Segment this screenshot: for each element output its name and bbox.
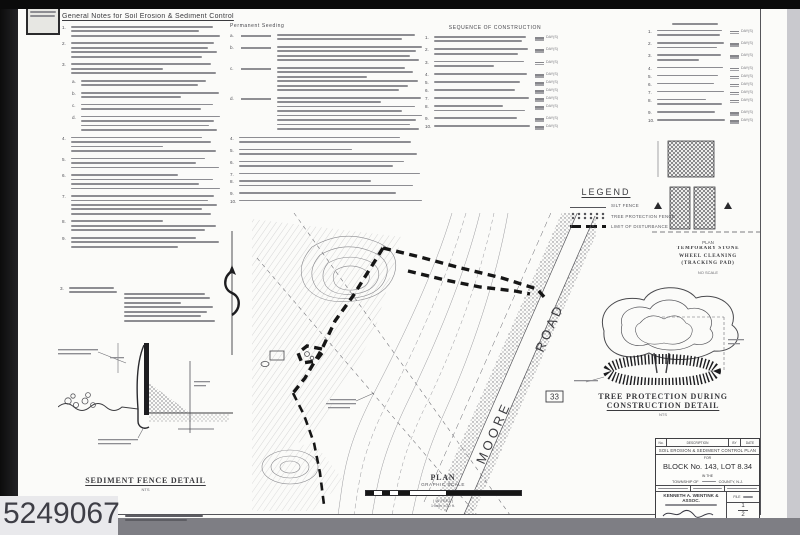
seeding-notes-section: Permanent Seeding a.b.c.d. 4.5.6.7.8.9.1… <box>230 23 422 207</box>
seeding-extra-paragraphs: 4.5.6.7.8.9.10. <box>230 137 422 205</box>
document-stamp-number: 5249067 <box>3 499 120 529</box>
notes-side-paragraph <box>124 293 216 324</box>
sediment-fence-drawing <box>58 321 233 471</box>
firm-cell: KENNETH A. WENTINK & ASSOC. <box>656 492 727 518</box>
drawing-sheet: General Notes for Soil Erosion & Sedimen… <box>18 9 787 518</box>
site-plan-drawing: MOORE ROAD 33 <box>252 213 596 515</box>
schedule-section: 1.DAY(S)2.DAY(S)3.DAY(S)4.DAY(S)5.DAY(S)… <box>648 23 760 127</box>
firm-row: KENNETH A. WENTINK & ASSOC. FILE 1 2 <box>656 492 759 518</box>
stone-pad-caption: TEMPORARY STONE WHEEL CLEANING (TRACKING… <box>652 245 764 268</box>
tree-detail-caption-line1: TREE PROTECTION DURING <box>574 392 752 401</box>
township-row: TOWNSHIP OF COUNTY, N.J. <box>656 478 759 486</box>
sheet-border-right <box>760 9 761 515</box>
sediment-fence-caption: SEDIMENT FENCE DETAIL <box>58 476 233 485</box>
road-name-road: ROAD <box>532 301 567 354</box>
general-notes-paragraphs: 1.2.3.a.b.c.d.4.5.6.7.8.9. <box>62 26 220 250</box>
scan-top-edge <box>0 0 800 9</box>
file-sheet-cells: FILE 1 2 <box>727 492 759 518</box>
route-badge: 33 <box>546 391 563 402</box>
general-notes-section: General Notes for Soil Erosion & Sedimen… <box>62 13 220 253</box>
sequence-title: SEQUENCE OF CONSTRUCTION <box>425 25 565 31</box>
sequence-rows: 1.DAY(S)2.DAY(S)3.DAY(S)4.DAY(S)5.DAY(S)… <box>425 36 565 130</box>
sheet-number-cell: 1 2 <box>727 503 759 518</box>
graphic-scale-label: GRAPHIC SCALE <box>358 482 528 487</box>
sequence-section: SEQUENCE OF CONSTRUCTION 1.DAY(S)2.DAY(S… <box>425 25 565 133</box>
north-arrow <box>221 231 243 355</box>
schedule-rows: 1.DAY(S)2.DAY(S)3.DAY(S)4.DAY(S)5.DAY(S)… <box>648 30 760 124</box>
tree-detail-scale: NTS <box>574 412 752 417</box>
tree-protection-detail: TREE PROTECTION DURING CONSTRUCTION DETA… <box>574 283 752 417</box>
scanned-plan-sheet: General Notes for Soil Erosion & Sedimen… <box>0 0 800 535</box>
general-notes-title: General Notes for Soil Erosion & Sedimen… <box>62 13 220 20</box>
svg-text:33: 33 <box>550 393 559 402</box>
scale-note: 1 inch = 30 ft. <box>358 503 528 508</box>
corner-mark-box <box>26 9 60 35</box>
scan-left-edge <box>0 9 18 501</box>
signature <box>661 508 721 518</box>
legend-entry-silt-fence: SILT FENCE <box>570 202 690 208</box>
notes-continuation: 3. <box>60 287 118 299</box>
plan-title-row: SOIL EROSION & SEDIMENT CONTROL PLAN <box>656 447 759 455</box>
seeding-items: a.b.c.d. <box>230 34 422 133</box>
seeding-notes-header: Permanent Seeding <box>230 23 422 29</box>
legend-title: LEGEND <box>570 187 642 197</box>
tree-detail-caption-line2: CONSTRUCTION DETAIL <box>574 401 752 410</box>
scan-right-edge <box>787 9 800 518</box>
file-cell: FILE <box>727 492 759 503</box>
plan-label: PLAN <box>358 473 528 482</box>
sediment-fence-detail: SEDIMENT FENCE DETAIL NTS <box>58 321 233 492</box>
stamp-patch: 5249067 <box>0 496 118 535</box>
stone-pad-scale: NO SCALE <box>652 270 764 275</box>
plan-caption-block: PLAN GRAPHIC SCALE ( IN FEET ) 1 inch = … <box>358 473 528 508</box>
sediment-fence-scale: NTS <box>58 487 233 492</box>
schedule-header-fuzzy <box>672 23 736 25</box>
block-lot-row: BLOCK No. 143, LOT 8.34 <box>656 460 759 473</box>
stamp-side-text-fuzzy <box>125 515 203 524</box>
tree-protection-drawing <box>574 283 752 385</box>
title-block: No. DESCRIPTION BY DATE SOIL EROSION & S… <box>655 438 760 518</box>
revision-header-row: No. DESCRIPTION BY DATE <box>656 439 759 447</box>
graphic-scale-bar <box>365 490 522 496</box>
firm-name: KENNETH A. WENTINK & ASSOC. <box>658 493 724 503</box>
silt-fence-symbol <box>570 202 606 208</box>
